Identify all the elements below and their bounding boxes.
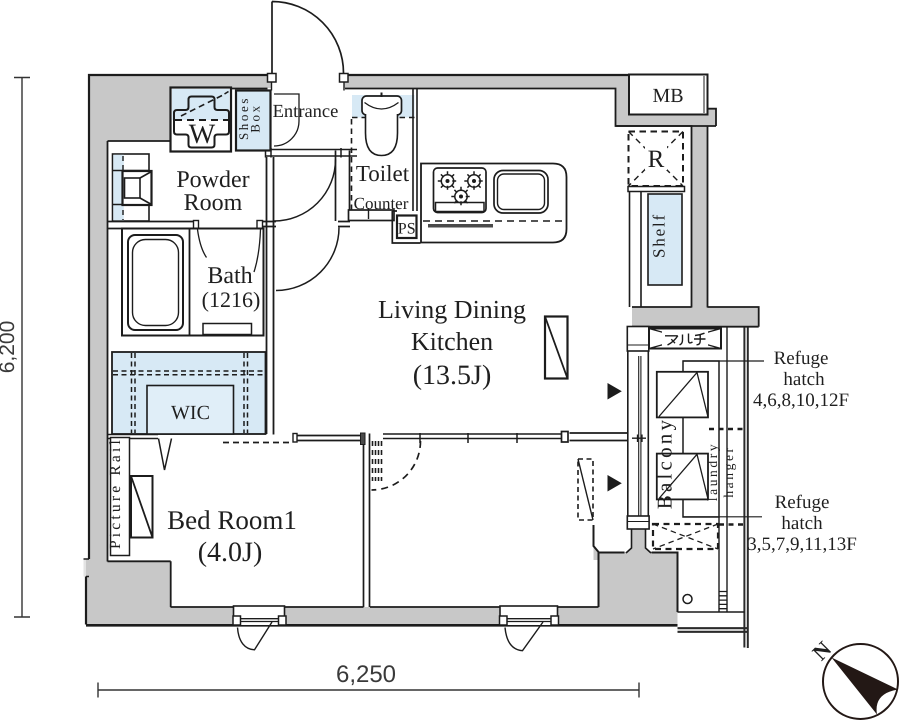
svg-text:WIC: WIC	[171, 402, 210, 424]
svg-text:R: R	[648, 146, 665, 173]
svg-text:Shelf: Shelf	[650, 213, 669, 258]
svg-text:Toilet: Toilet	[356, 161, 410, 186]
svg-text:MB: MB	[652, 85, 683, 107]
svg-text:Picture Rail: Picture Rail	[107, 437, 124, 549]
svg-text:Bed Room1: Bed Room1	[167, 505, 297, 535]
svg-text:3,5,7,9,11,13F: 3,5,7,9,11,13F	[747, 534, 857, 555]
svg-text:Balcony: Balcony	[653, 417, 677, 509]
svg-text:PS: PS	[398, 221, 416, 238]
svg-text:Living Dining: Living Dining	[378, 295, 526, 324]
svg-text:hatch: hatch	[781, 513, 823, 534]
svg-text:Refuge: Refuge	[775, 492, 830, 513]
svg-text:Bath: Bath	[207, 263, 252, 289]
svg-text:Kitchen: Kitchen	[411, 327, 493, 356]
svg-text:(4.0J): (4.0J)	[198, 537, 263, 568]
svg-text:laundry: laundry	[705, 442, 720, 501]
svg-text:W: W	[189, 119, 216, 150]
svg-text:Room: Room	[184, 190, 243, 216]
svg-text:Refuge: Refuge	[774, 348, 829, 369]
svg-text:(13.5J): (13.5J)	[413, 360, 492, 391]
svg-text:6,250: 6,250	[336, 661, 396, 688]
svg-text:Box: Box	[248, 103, 263, 132]
svg-text:(1216): (1216)	[202, 287, 261, 312]
svg-text:hatch: hatch	[783, 369, 825, 390]
svg-text:Entrance: Entrance	[273, 102, 339, 122]
svg-text:hanger: hanger	[721, 445, 736, 497]
svg-text:4,6,8,10,12F: 4,6,8,10,12F	[753, 390, 849, 411]
svg-text:6,200: 6,200	[0, 321, 19, 374]
